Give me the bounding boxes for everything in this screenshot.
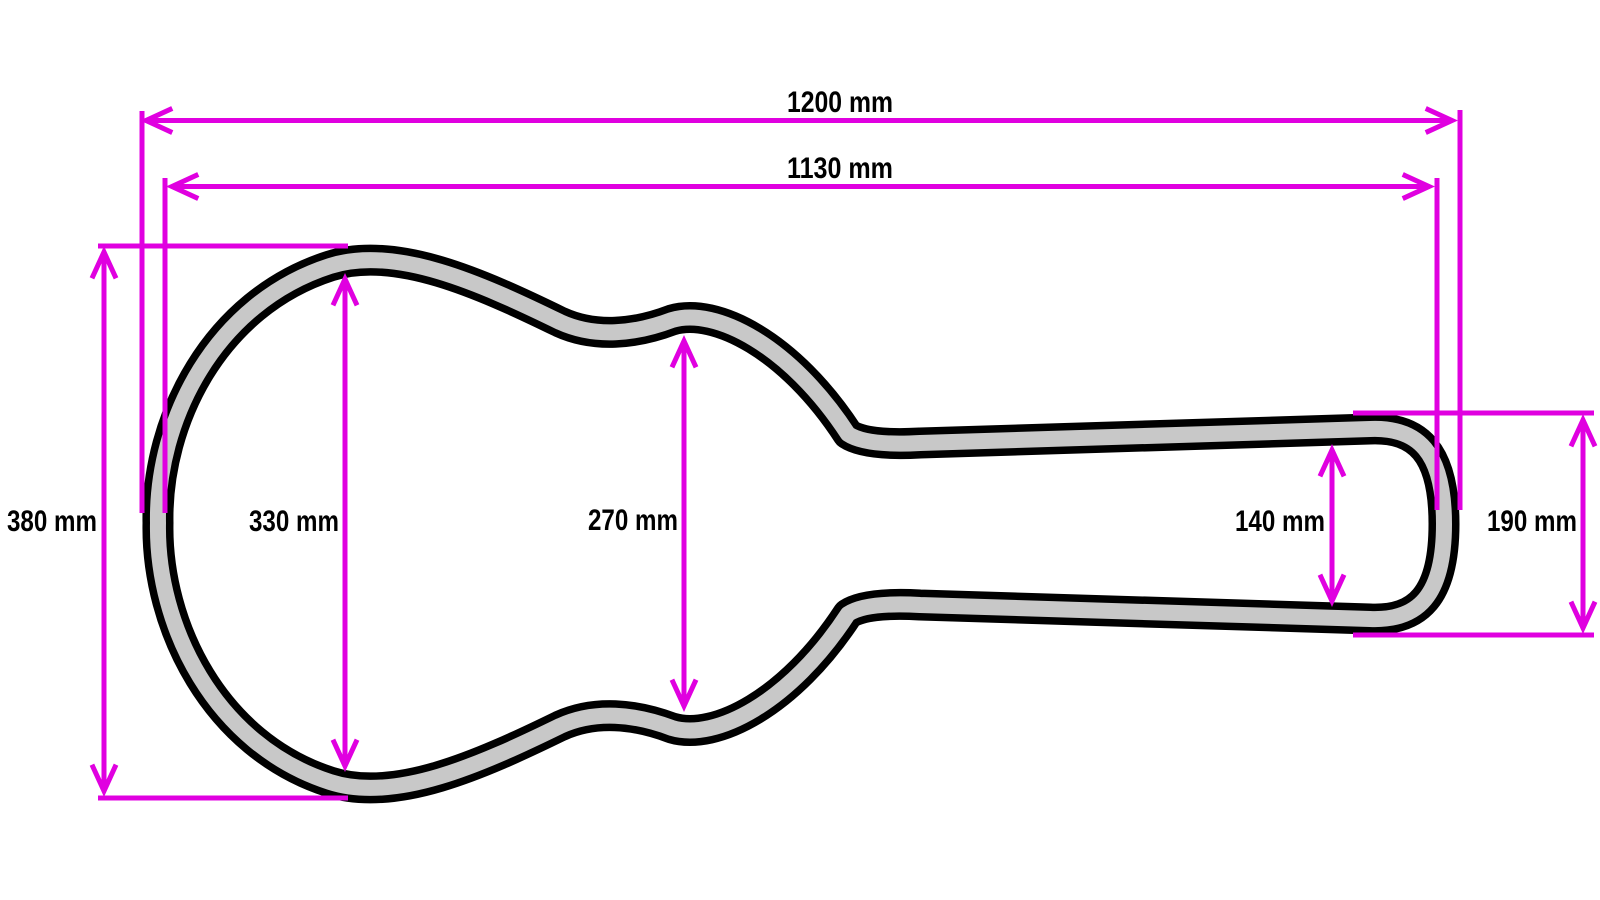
diagram-canvas: 1200 mm 1130 mm 380 mm 330 mm (0, 0, 1600, 900)
dimension-label-body-interior-height: 330 mm (249, 505, 339, 538)
dimension-label-interior-length: 1130 mm (787, 152, 893, 185)
dimension-label-neck-interior-height: 140 mm (1235, 505, 1325, 538)
dimension-label-waist-interior-height: 270 mm (588, 504, 678, 537)
guitar-case-dimension-drawing: 1200 mm 1130 mm 380 mm 330 mm (0, 0, 1600, 900)
dimension-label-neck-outer-height: 190 mm (1487, 505, 1577, 538)
dimension-label-overall-length: 1200 mm (787, 86, 893, 119)
dimension-label-body-outer-height: 380 mm (7, 505, 97, 538)
